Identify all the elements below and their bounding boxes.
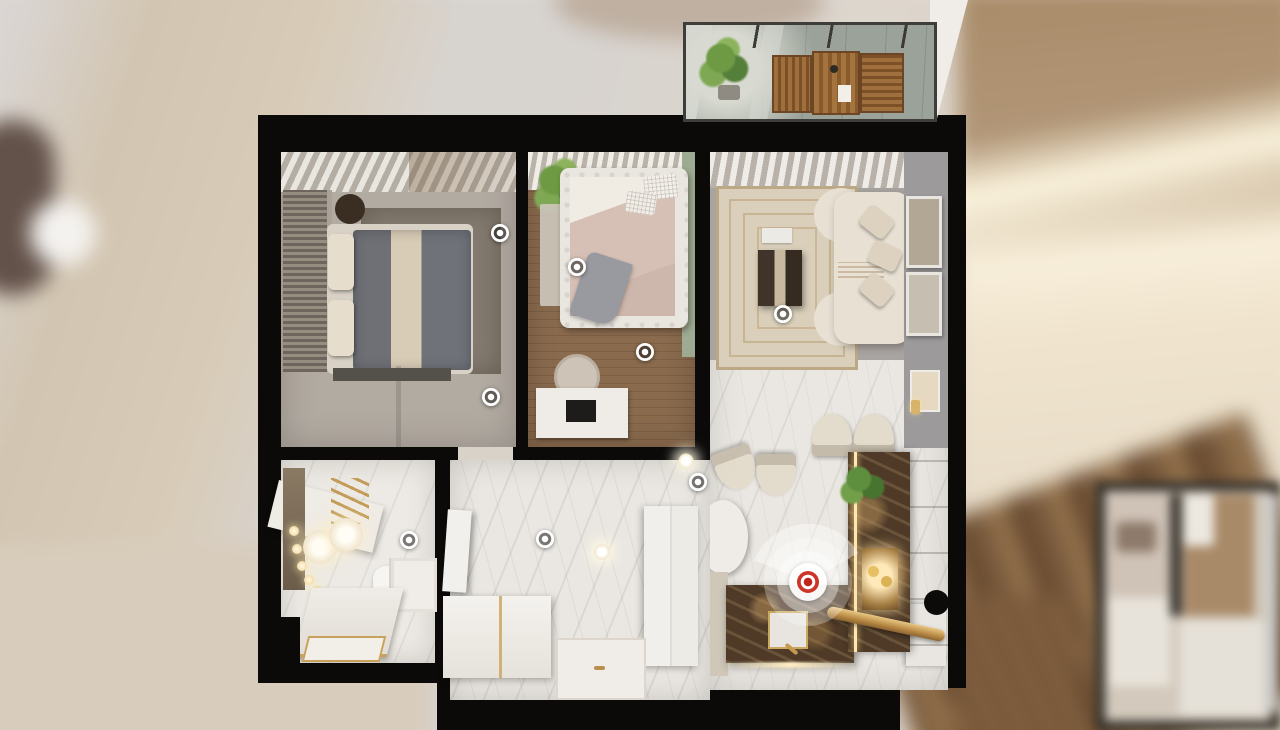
active-hotspot-core-icon (797, 571, 819, 593)
hotspot-kitchen[interactable] (799, 573, 817, 591)
hotspot-kids-room-floor[interactable] (636, 343, 654, 361)
hotspot-living-room[interactable] (774, 305, 792, 323)
hotspot-kids-room-rug[interactable] (568, 258, 586, 276)
hotspot-bathroom[interactable] (400, 531, 418, 549)
virtual-tour-stage (0, 0, 1280, 730)
hotspot-hallway[interactable] (536, 530, 554, 548)
hotspot-hall-kitchen-entry[interactable] (689, 473, 707, 491)
hotspot-bedroom-dresser[interactable] (482, 388, 500, 406)
hotspot-layer (0, 0, 1280, 730)
hotspot-bedroom[interactable] (491, 224, 509, 242)
